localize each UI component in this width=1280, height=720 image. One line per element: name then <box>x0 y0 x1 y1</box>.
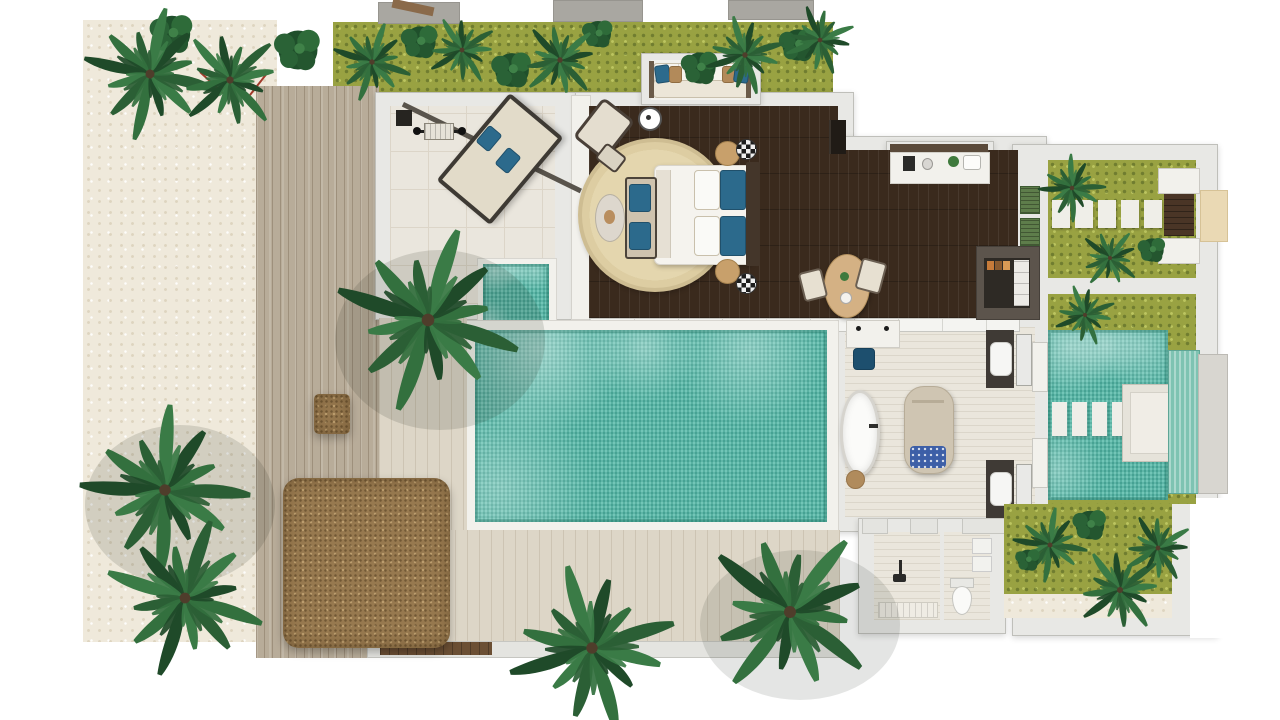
floor-plan-canvas <box>0 0 1280 720</box>
waterfall-east-pad <box>1198 354 1228 494</box>
entry-portal-north <box>1158 168 1200 194</box>
south-pool-terrace <box>443 530 840 642</box>
shell-ornament <box>604 210 615 224</box>
minibar-plant <box>948 156 959 167</box>
bed-headboard <box>746 162 760 266</box>
top-stone-pad-3 <box>728 0 814 20</box>
vanity-mirror-north <box>1016 334 1032 386</box>
bed-pillow-white-top <box>694 170 720 210</box>
deck-doormat <box>314 394 350 434</box>
top-stone-pad-2 <box>553 0 643 22</box>
vanity-sink-south <box>990 472 1012 506</box>
wet-room-wall-seg-2 <box>910 518 938 534</box>
shower-bench <box>878 602 938 618</box>
bench-cushion-2 <box>629 222 651 250</box>
dining-plant <box>840 272 849 281</box>
gym-weight-plate-left <box>413 127 421 135</box>
thatched-pavilion-roof <box>283 478 450 648</box>
sofa-pillow-blue-right <box>733 64 750 84</box>
waterfall-cascade <box>1168 350 1200 494</box>
sofa-armrest-left <box>649 61 654 98</box>
bench-cushion-1 <box>629 184 651 212</box>
vanity-stool-blue <box>853 348 875 370</box>
bed-pillow-blue-top <box>720 170 746 210</box>
checker-stool-bottom <box>736 273 757 294</box>
green-louvre-lower <box>1020 218 1040 246</box>
vanity-sink-north <box>990 342 1012 376</box>
beach-sand-area <box>83 20 277 642</box>
wet-room-wall-seg-3 <box>962 518 1006 534</box>
checker-stool-top <box>736 139 757 160</box>
bathtub <box>840 390 880 476</box>
entry-wood-path <box>1164 194 1194 236</box>
entry-stepping-stones <box>1052 200 1162 228</box>
green-louvre-upper <box>1020 186 1040 214</box>
tub-faucet <box>869 424 878 428</box>
massage-headrest-line <box>912 400 944 403</box>
main-pool <box>475 330 827 522</box>
bed-pillow-white-bottom <box>694 216 720 256</box>
wet-room-wall-seg-1 <box>862 518 888 534</box>
bath-window-north <box>1032 342 1048 392</box>
shower-head <box>893 574 906 582</box>
entry-step-outside <box>1200 190 1228 242</box>
wardrobe-shelves <box>1014 260 1029 306</box>
console-candle-2 <box>884 326 889 331</box>
bath-console <box>846 320 900 348</box>
wc-cabinet-2 <box>972 556 992 572</box>
outdoor-sofa-seat <box>653 80 749 98</box>
entry-portal-south <box>1158 238 1200 264</box>
bed-pillow-blue-bottom <box>720 216 746 256</box>
minibar-shelf <box>890 144 988 152</box>
bush-icon <box>274 30 320 71</box>
hanging-clothes-1 <box>987 261 994 270</box>
massage-towel-blue <box>910 446 946 468</box>
se-corner-cutout <box>1190 498 1280 638</box>
wall-tv <box>829 120 846 154</box>
console-candle-1 <box>856 326 861 331</box>
speaker-box <box>396 110 412 126</box>
bath-window-south <box>1032 438 1048 488</box>
rear-garden-sand-strip <box>1004 594 1172 618</box>
minibar-sink <box>963 155 981 170</box>
floor-lamp-bulb <box>646 115 651 120</box>
gym-bench <box>424 123 454 140</box>
hanging-clothes-2 <box>995 261 1002 270</box>
dining-carafe <box>840 292 852 304</box>
gym-weight-plate-right <box>458 127 466 135</box>
water-court-stepping-stones <box>1052 402 1127 436</box>
sofa-pillow-tan-left <box>669 66 682 83</box>
fitness-lounge-floor-sw <box>390 266 478 304</box>
bed-foot-throw <box>656 170 671 258</box>
wc-cabinet-1 <box>972 538 992 554</box>
kettle <box>922 158 933 170</box>
wooden-stool <box>846 470 865 489</box>
hanging-clothes-3 <box>1003 261 1010 270</box>
coffee-machine <box>903 156 915 171</box>
